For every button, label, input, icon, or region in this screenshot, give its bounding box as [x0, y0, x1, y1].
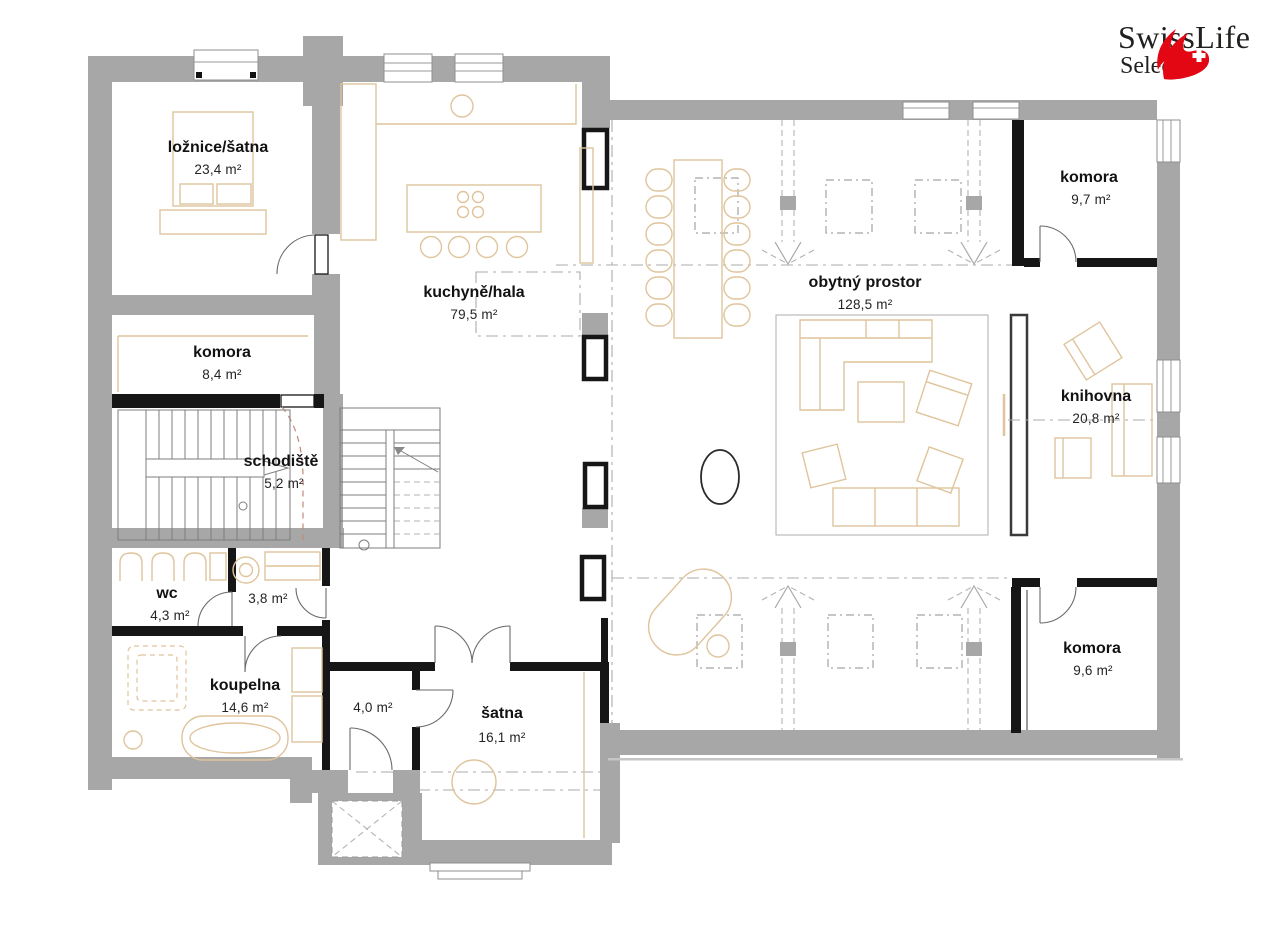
furniture-kitchen: [341, 84, 593, 263]
roof-columns: [762, 120, 1000, 730]
stool: [421, 237, 442, 258]
room-label-loznice: ložnice/šatna: [168, 139, 269, 156]
ceiling-panels: [695, 178, 962, 668]
staircase-secondary: [340, 408, 440, 550]
room-label-satna: šatna: [481, 705, 523, 722]
room-area-kuchyne: 79,5 m²: [450, 307, 497, 322]
furniture-wc: [120, 552, 320, 583]
tv-partition: [1011, 315, 1027, 535]
stool: [477, 237, 498, 258]
room-area-40: 4,0 m²: [353, 700, 393, 715]
sink: [451, 95, 473, 117]
room-label-schodiste: schodiště: [244, 453, 319, 470]
room-label-kuchyne: kuchyně/hala: [423, 284, 524, 301]
room-area-loznice: 23,4 m²: [194, 162, 241, 177]
room-area-knihovna: 20,8 m²: [1072, 411, 1119, 426]
room-area-38: 3,8 m²: [248, 591, 288, 606]
room-label-knihovna: knihovna: [1061, 388, 1131, 405]
staircase-main: [118, 410, 290, 540]
window-jamb: [250, 72, 256, 78]
room-area-schodiste: 5,2 m²: [264, 476, 304, 491]
dining-table: [674, 160, 722, 338]
counter-left: [341, 84, 376, 240]
floor-plan-page: ložnice/šatna 23,4 m² kuchyně/hala 79,5 …: [0, 0, 1280, 941]
coffee-table: [858, 382, 904, 422]
bench: [160, 210, 266, 234]
room-label-komora1: komora: [193, 344, 251, 361]
room-label-komora2: komora: [1060, 169, 1118, 186]
furniture-living: [637, 160, 988, 666]
stool: [449, 237, 470, 258]
swisslife-logo: SwissLife Select: [1118, 22, 1268, 78]
room-label-koupelna: koupelna: [210, 677, 280, 694]
room-label-obytny: obytný prostor: [809, 274, 922, 291]
window-jamb: [196, 72, 202, 78]
room-area-obytny: 128,5 m²: [838, 297, 893, 312]
room-label-komora3: komora: [1063, 640, 1121, 657]
room-area-wc: 4,3 m²: [150, 608, 190, 623]
stair-door-swing: [282, 407, 303, 540]
room-labels: ložnice/šatna 23,4 m² kuchyně/hala 79,5 …: [150, 139, 1131, 745]
armchair: [1055, 438, 1091, 478]
room-area-komora3: 9,6 m²: [1073, 663, 1113, 678]
stool: [507, 237, 528, 258]
chaise-lounge: [637, 558, 743, 667]
room-label-wc: wc: [155, 585, 177, 602]
room-area-komora1: 8,4 m²: [202, 367, 242, 382]
room-area-koupelna: 14,6 m²: [221, 700, 268, 715]
toilet: [233, 557, 259, 583]
room-area-satna: 16,1 m²: [478, 730, 525, 745]
hanging-chair: [701, 450, 739, 504]
room-area-komora2: 9,7 m²: [1071, 192, 1111, 207]
floor-plan: ložnice/šatna 23,4 m² kuchyně/hala 79,5 …: [0, 0, 1280, 941]
swisslife-logo-icon: [1152, 22, 1212, 82]
